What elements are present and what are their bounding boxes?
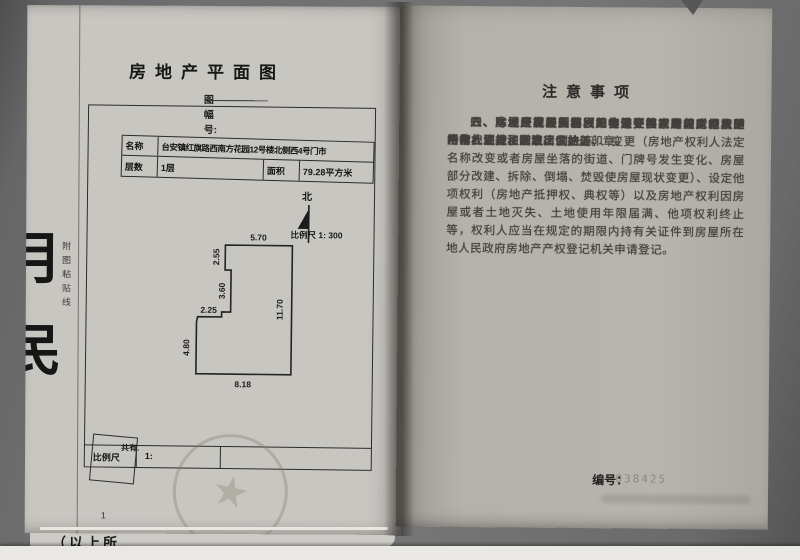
serial-number-field: 编号：00038425 [592, 471, 667, 486]
dim-top: 5.70 [250, 232, 267, 242]
area-value-cell: 79.28平方米 [300, 161, 374, 183]
shared-ownership-label: 共有. [121, 443, 139, 454]
property-info-table: 名称 台安镇红旗路西南方花园12号楼北侧西4号门市 层数 1层 面积 79.28… [121, 135, 375, 184]
dim-left-upper: 2.55 [211, 248, 221, 265]
scanned-certificate-photo: 月 民 附图粘贴线 房地产平面图 图幅号: 名称 台安镇红旗路西南方花园12号楼… [0, 0, 800, 560]
scan-bottom-strip [0, 546, 800, 560]
left-page: 月 民 附图粘贴线 房地产平面图 图幅号: 名称 台安镇红旗路西南方花园12号楼… [25, 5, 404, 535]
floors-label-cell: 层数 [122, 156, 159, 177]
dim-left-lower: 4.80 [181, 339, 191, 356]
seal-star-icon: ★ [207, 464, 254, 520]
dim-left-mid: 3.60 [217, 282, 227, 299]
name-label-cell: 名称 [122, 136, 159, 156]
right-page: 注意事项 一、本证是房屋所有权的合法证件。房屋所有权受中华人民共和国法律保护。二… [396, 5, 773, 529]
plan-frame: 名称 台安镇红旗路西南方花园12号楼北侧西4号门市 层数 1层 面积 79.28… [84, 104, 376, 470]
floors-value-cell: 1层 [158, 157, 265, 180]
dim-bottom: 8.18 [234, 379, 251, 389]
floor-plan-outline: 5.70 2.55 3.60 2.25 4.80 8.18 11.70 [165, 228, 312, 405]
notice-paragraph: 六、本证应妥善保管，如有遗失、损毁的，须及时申请补发。 [447, 114, 745, 153]
cover-glyph-bottom: 民 [25, 323, 62, 379]
dim-step: 2.25 [200, 305, 217, 315]
notice-title: 注意事项 [399, 79, 771, 103]
north-label: 北 [293, 188, 321, 203]
page-number: 1 [101, 510, 106, 520]
ink-smudge [601, 494, 751, 504]
sheet-number-blank-line [206, 91, 268, 101]
page-title: 房地产平面图 [129, 58, 285, 84]
dim-right: 11.70 [275, 299, 285, 320]
cover-glyph-top: 月 [25, 231, 63, 287]
area-label-cell: 面积 [264, 160, 301, 181]
booklet-spine-shadow [384, 2, 414, 536]
cutoff-text: （以上所… [52, 533, 395, 547]
paste-line-vertical-label: 附图粘贴线 [60, 241, 73, 311]
shared-ownership-box [89, 433, 138, 484]
serial-label: 编号： [592, 471, 628, 488]
margin-divider-line [77, 5, 81, 533]
page-stack-edge [40, 527, 388, 530]
notice-paragraphs: 一、本证是房屋所有权的合法证件。房屋所有权受中华人民共和国法律保护。二、房屋所有… [447, 114, 745, 117]
